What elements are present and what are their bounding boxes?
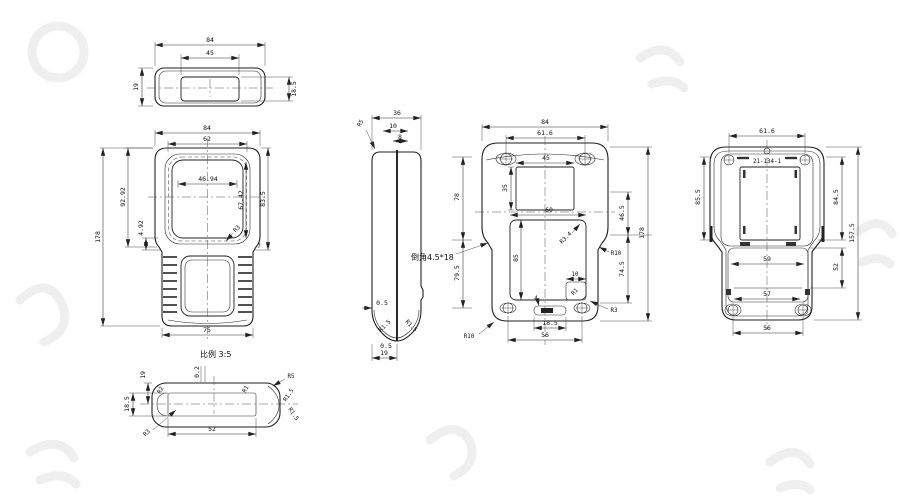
- detail-right-arc: [268, 386, 279, 424]
- dim-text: 157.5: [848, 223, 856, 243]
- dim-text: 18.5: [542, 319, 558, 327]
- dim-text: 92.92: [119, 187, 127, 207]
- side-r5-callout: R5: [357, 119, 375, 149]
- scale-note: 比例 3:5: [200, 349, 231, 359]
- dim-front-75: 75: [162, 326, 253, 338]
- detail-inner-rect: [168, 393, 256, 416]
- radius-label: R3: [611, 308, 618, 314]
- dim-text: 36: [393, 109, 401, 117]
- chamfer-text: 倒角4.5*18: [411, 252, 454, 262]
- radius-label: R1.5: [286, 407, 299, 422]
- screw-hole: [795, 304, 811, 316]
- view-detail: 19 0.2 18.5 52 R5 R1.5 R1.5 R3 R2 R1: [123, 366, 300, 438]
- screw-hole: [575, 152, 595, 166]
- dim-top-19: 19: [132, 68, 153, 106]
- radius-label: R5: [288, 374, 295, 380]
- dim-rear-85-5: 85.5: [694, 157, 712, 240]
- dim-text: 10: [572, 272, 579, 278]
- dim-text: 56: [763, 324, 771, 332]
- corner-mark: [743, 170, 746, 178]
- dim-side-10: 10: [383, 122, 408, 131]
- dim-back-74-5: 74.5: [600, 235, 632, 303]
- view-rear: 21-134-1 61.6: [694, 127, 862, 336]
- radius-label: R5: [357, 119, 366, 128]
- dim-text: 4: [534, 296, 538, 302]
- radius-label: R10: [464, 334, 475, 340]
- dim-detail-0-2: 0.2: [193, 366, 205, 382]
- engineering-drawing-sheet: 84 45 19 18.5: [0, 0, 900, 500]
- dim-text: 59: [763, 255, 771, 263]
- dim-text: 74.5: [618, 261, 626, 277]
- corner-mark: [795, 226, 798, 234]
- dim-side-0-5a: 0.5: [362, 299, 388, 308]
- dim-text: 52: [832, 263, 840, 271]
- detail-outline: [152, 383, 280, 427]
- dim-text: 85.5: [694, 189, 702, 205]
- dim-back-4: 4: [534, 296, 539, 306]
- screw-hole: [724, 155, 734, 165]
- dim-text: 45: [206, 49, 214, 57]
- dim-text: 19: [380, 349, 388, 357]
- radius-label: R1: [571, 287, 581, 297]
- dim-text: 46.94: [198, 175, 218, 183]
- dim-text: 84: [206, 36, 214, 44]
- front-r3-callout: R3: [226, 224, 242, 241]
- dim-text: 84.5: [832, 189, 840, 205]
- detail-r3-callout: R3: [143, 410, 176, 438]
- radius-label: R1.5: [404, 319, 418, 333]
- dim-rear-57: 57: [734, 290, 800, 299]
- dim-back-85: 85: [512, 220, 521, 300]
- dim-rear-52: 52: [810, 248, 846, 288]
- back-r3-4-callout: R3.4: [559, 224, 580, 245]
- back-r10-bottom-left-callout: R10: [464, 322, 494, 340]
- dim-text: 18.5: [290, 81, 298, 97]
- dim-text: 46.5: [618, 205, 626, 221]
- part-number: 21-134-1: [753, 159, 781, 165]
- dim-text: 18.5: [123, 396, 131, 412]
- dim-text: 0.2: [193, 366, 201, 378]
- dim-text: 178: [638, 227, 646, 239]
- dim-text: 84: [541, 118, 549, 126]
- dim-text: 61.6: [537, 129, 553, 137]
- dim-front-83-5: 83.5: [255, 148, 271, 250]
- latch-ear: [805, 289, 810, 295]
- dim-text: 45: [542, 154, 550, 162]
- screw-hole: [800, 155, 810, 165]
- dim-back-60: 60: [510, 206, 586, 215]
- dim-78: 78: [452, 157, 472, 240]
- dim-rear-59: 59: [731, 255, 804, 264]
- foot-mark: [786, 242, 796, 246]
- dim-back-45: 45: [516, 154, 574, 163]
- dim-text: 19: [139, 371, 147, 379]
- dim-text: 0.5: [376, 299, 388, 307]
- radius-label: R3: [143, 428, 153, 438]
- foot-mark: [740, 242, 750, 246]
- dim-text: 178: [94, 231, 102, 243]
- screw-hole: [500, 302, 516, 314]
- radius-label: R1: [242, 385, 251, 394]
- dim-front-178: 178: [94, 148, 160, 326]
- radius-label: R3.4: [559, 231, 573, 245]
- dim-back-10: 10: [566, 272, 586, 279]
- screw-hole: [574, 302, 590, 314]
- view-back: 84 61.6 45 35 60 R3.4 85: [464, 118, 652, 345]
- dim-back-35: 35: [501, 167, 514, 210]
- dim-text: 60: [545, 206, 553, 214]
- dim-text: 8: [398, 133, 402, 141]
- dim-text: 75: [203, 326, 211, 334]
- dim-text: 4.92: [137, 220, 145, 236]
- chamfer-note: 倒角4.5*18: [411, 243, 488, 262]
- dim-text: 10: [389, 122, 397, 130]
- radius-label: R3: [233, 224, 243, 234]
- watermark: [20, 26, 892, 490]
- corner-mark: [743, 226, 746, 234]
- dim-text: 84: [203, 124, 211, 132]
- radius-label: R10: [611, 251, 622, 257]
- dim-top-18-5: 18.5: [241, 77, 298, 101]
- dim-detail-19: 19: [139, 371, 152, 404]
- dim-text: 67.42: [237, 190, 245, 210]
- detail-r5-callout: R5: [273, 374, 295, 386]
- dim-text: 7: [257, 244, 261, 250]
- dim-back-18-5: 18.5: [534, 317, 566, 331]
- dim-front-46-94: 46.94: [178, 175, 237, 188]
- dim-text: 79.5: [453, 265, 461, 281]
- dim-text: 61.6: [759, 127, 775, 135]
- dim-front-4-92: 4.92: [137, 220, 160, 250]
- screw-hole: [496, 152, 516, 166]
- dim-text: 56: [541, 331, 549, 339]
- dim-text: 57: [763, 290, 771, 298]
- view-top: 84 45 19 18.5: [132, 36, 298, 106]
- rear-recess: [740, 167, 800, 240]
- drawing-canvas: 84 45 19 18.5: [0, 0, 900, 500]
- dim-79-5: 79.5: [452, 240, 472, 308]
- view-side: R5 36 10 8 倒角4.5*18 0.5 R1.5 R1.5 0.5: [357, 109, 488, 361]
- corner-mark: [795, 170, 798, 178]
- radius-label: R1.5: [283, 388, 296, 403]
- dim-text: 78: [453, 193, 461, 201]
- dim-text: 35: [501, 184, 509, 192]
- dim-side-8: 8: [393, 133, 408, 141]
- detail-left-fillet: [157, 393, 168, 416]
- dim-text: 62: [203, 135, 211, 143]
- radius-label: R1.5: [378, 319, 392, 333]
- dim-text: 19: [132, 83, 140, 91]
- back-r10-right-callout: R10: [599, 247, 622, 257]
- dim-text: 52: [208, 425, 216, 433]
- latch-ear: [726, 289, 731, 295]
- battery-slider: [534, 306, 566, 315]
- dim-text: 83.5: [259, 191, 267, 207]
- dim-text: 85: [512, 254, 520, 262]
- dim-back-61-6: 61.6: [506, 129, 585, 152]
- dim-rear-157-5: 157.5: [814, 147, 862, 320]
- view-front: 84 62 46.94 92.92 4.92 178: [94, 124, 271, 359]
- screw-hole: [725, 304, 741, 316]
